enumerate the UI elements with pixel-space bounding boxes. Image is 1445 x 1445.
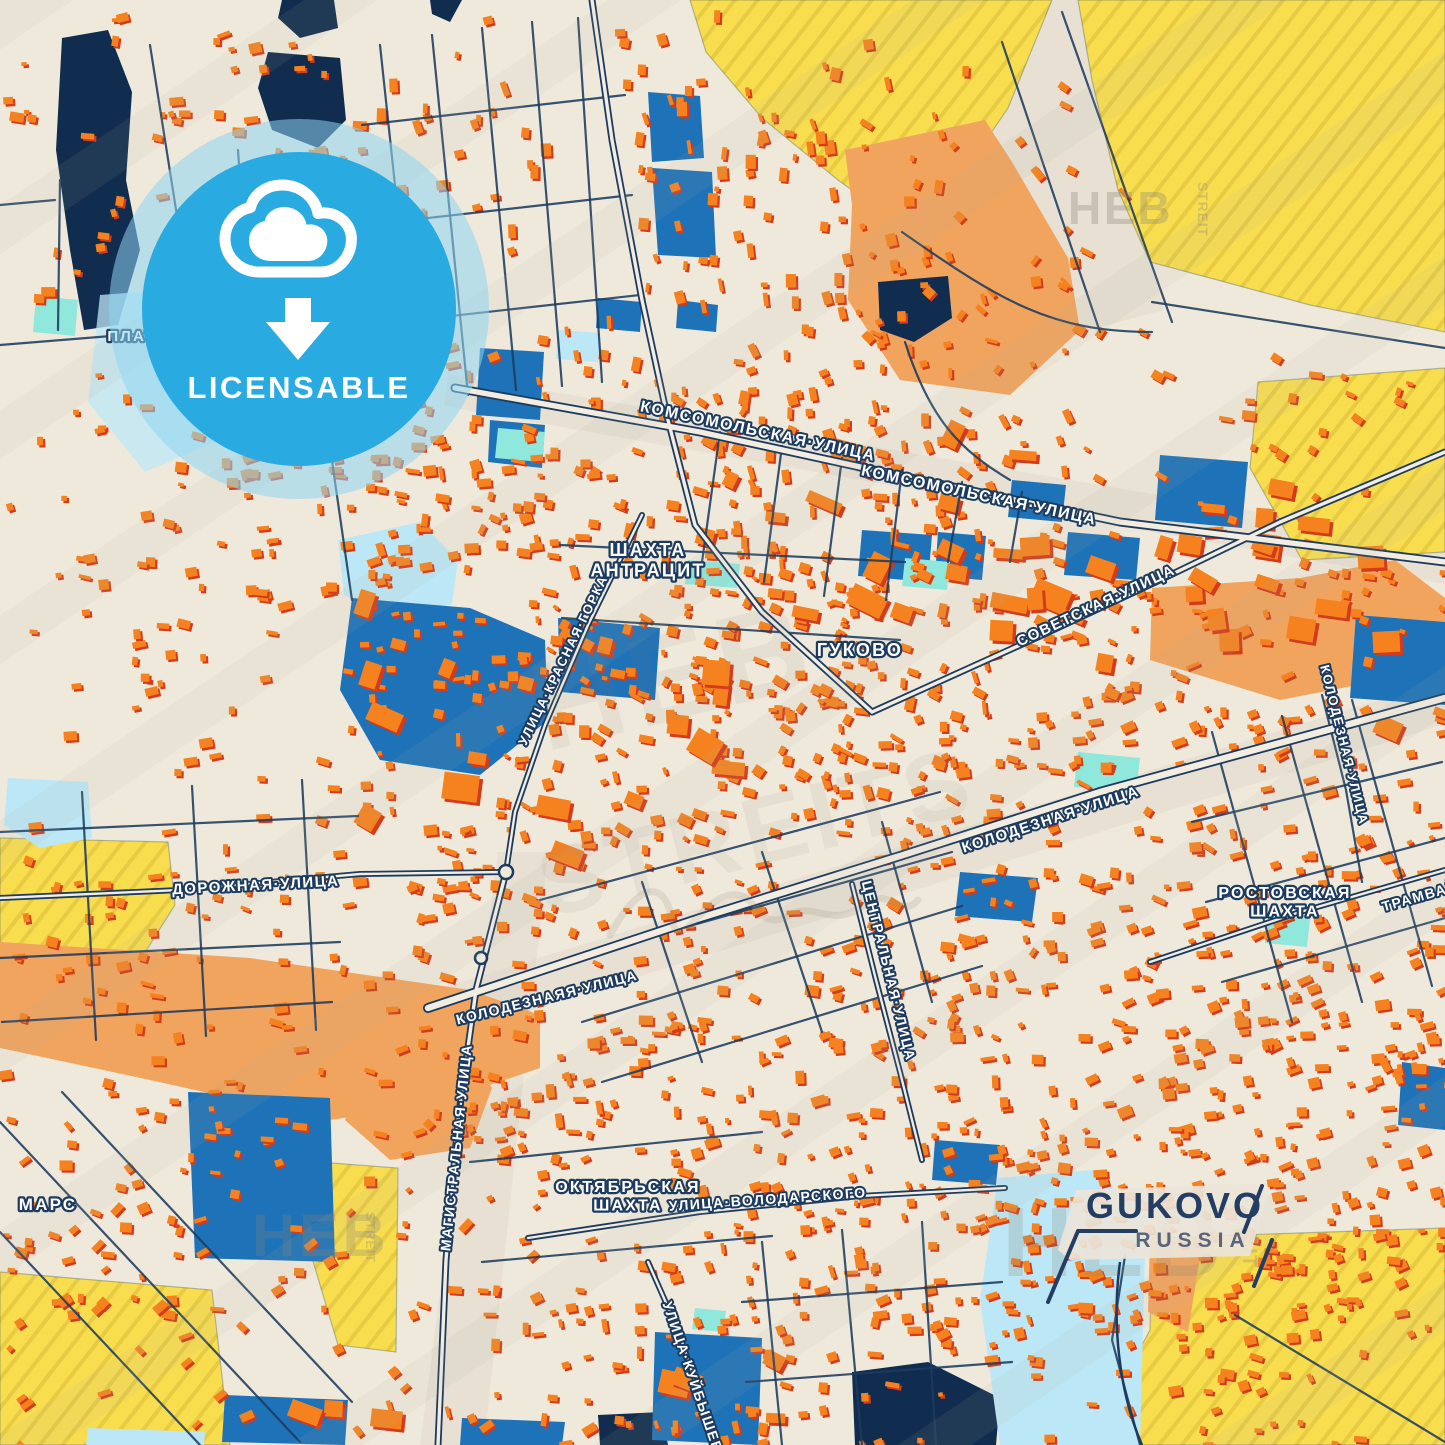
place-label-mars: МАРС [19, 1195, 77, 1214]
licensable-badge[interactable]: LICENSABLE [109, 119, 489, 499]
map-canvas: HEBSTREITHEBSTREITSHEBSTREITHEBSTREIT КО… [0, 0, 1445, 1445]
brand-watermark-0: HEB [1068, 182, 1173, 234]
badge-label: LICENSABLE [187, 370, 410, 405]
brand-watermark-5: STREIT [363, 1212, 378, 1263]
city-name: GUKOVO [1086, 1185, 1264, 1226]
brand-watermark-1: STREIT [1195, 182, 1211, 237]
country-name: RUSSIA [1135, 1229, 1250, 1252]
map-poster: HEBSTREITHEBSTREITSHEBSTREITHEBSTREIT КО… [0, 0, 1445, 1445]
place-label-gukovo-district: ГУКОВО [817, 640, 903, 660]
